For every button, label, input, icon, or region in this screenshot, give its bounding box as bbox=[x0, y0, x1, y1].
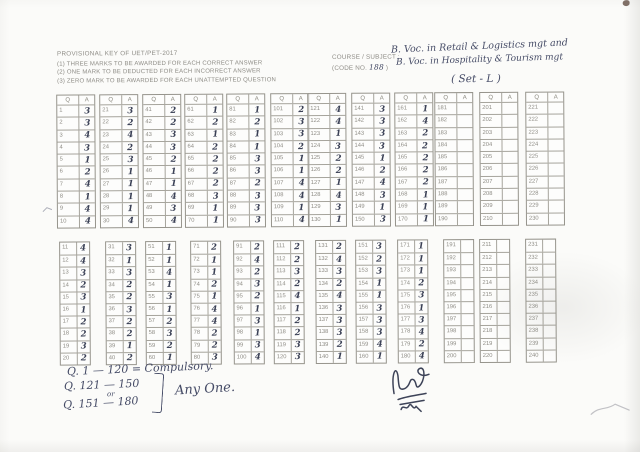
question-number: 187 bbox=[436, 177, 458, 188]
question-number: 176 bbox=[398, 302, 415, 313]
answer-cell: 2 bbox=[250, 178, 265, 189]
column-header-q: Q bbox=[143, 95, 165, 104]
answer-cell: 4 bbox=[80, 216, 95, 227]
question-number: 109 bbox=[272, 203, 294, 214]
question-number: 129 bbox=[309, 202, 331, 213]
question-number: 175 bbox=[398, 290, 415, 301]
answer-row: 217 bbox=[481, 313, 510, 325]
answer-row: 1271 bbox=[309, 177, 346, 190]
answer-row: 197 bbox=[445, 313, 474, 325]
question-number: 194 bbox=[444, 278, 461, 289]
question-number: 116 bbox=[274, 303, 291, 314]
question-number: 182 bbox=[435, 115, 457, 126]
question-number: 127 bbox=[309, 178, 331, 189]
answer-cell bbox=[462, 314, 474, 325]
answer-table-161-170: QA16111624163216421652166216721681169117… bbox=[394, 92, 434, 226]
handwritten-answer: 3 bbox=[127, 155, 133, 165]
answer-cell: 1 bbox=[249, 104, 264, 115]
handwritten-answer: 3 bbox=[80, 293, 86, 303]
code-suffix: ) bbox=[384, 65, 388, 72]
course-subject-label: COURSE / SUBJECT : bbox=[332, 54, 400, 61]
answer-row: 233 bbox=[526, 264, 555, 276]
answer-cell bbox=[503, 164, 518, 175]
question-number: 139 bbox=[317, 339, 334, 350]
question-number: 119 bbox=[275, 340, 292, 351]
answer-cell bbox=[457, 103, 472, 114]
question-number: 104 bbox=[271, 141, 293, 152]
answer-cell: 3 bbox=[374, 104, 389, 115]
answer-row: 642 bbox=[185, 140, 222, 153]
answer-cell bbox=[503, 177, 518, 188]
answer-cell: 2 bbox=[331, 165, 346, 176]
answer-cell bbox=[503, 189, 518, 200]
question-number: 113 bbox=[274, 267, 291, 278]
answer-row: 1104 bbox=[272, 214, 309, 227]
answer-row: 1784 bbox=[399, 326, 428, 338]
answer-cell bbox=[461, 302, 473, 313]
answer-cell bbox=[549, 201, 564, 212]
answer-row: 1731 bbox=[398, 265, 427, 277]
handwritten-answer: 3 bbox=[298, 129, 304, 139]
question-number: 47 bbox=[144, 179, 166, 190]
handwritten-answer: 1 bbox=[294, 304, 300, 314]
answer-cell: 1 bbox=[294, 166, 309, 177]
handwritten-answer: 1 bbox=[127, 167, 133, 177]
answer-row: 1383 bbox=[317, 326, 346, 338]
handwritten-answer: 4 bbox=[294, 291, 300, 301]
handwritten-answer: 4 bbox=[84, 217, 90, 227]
answer-row: 1611 bbox=[395, 102, 432, 115]
question-number: 238 bbox=[527, 326, 544, 337]
answer-row: 1672 bbox=[396, 176, 433, 189]
answer-cell bbox=[461, 278, 473, 289]
answer-cell: 1 bbox=[208, 267, 220, 278]
answer-cell: 2 bbox=[292, 315, 304, 326]
answer-cell bbox=[458, 189, 473, 200]
answer-row: 1042 bbox=[271, 140, 308, 153]
question-number: 217 bbox=[481, 314, 498, 325]
answer-row: 701 bbox=[186, 214, 223, 227]
answer-row: 199 bbox=[445, 338, 474, 350]
handwritten-answer: 1 bbox=[166, 243, 172, 253]
answer-cell: 2 bbox=[293, 104, 308, 115]
handwritten-answer: 3 bbox=[379, 104, 385, 114]
handwritten-answer: 3 bbox=[379, 129, 385, 139]
question-number: 10 bbox=[58, 216, 80, 227]
answer-cell: 3 bbox=[250, 215, 265, 226]
handwritten-answer: 2 bbox=[294, 328, 300, 338]
question-number: 172 bbox=[398, 254, 415, 265]
question-number: 92 bbox=[234, 255, 251, 266]
answer-row: 1681 bbox=[396, 188, 433, 201]
answer-row: 1573 bbox=[357, 314, 386, 326]
answer-cell: 1 bbox=[375, 153, 390, 164]
answer-cell: 2 bbox=[418, 177, 433, 188]
question-number: 152 bbox=[356, 254, 373, 265]
answer-row: 232 bbox=[526, 252, 555, 264]
answer-cell: 3 bbox=[293, 129, 308, 140]
column-header-q: Q bbox=[308, 94, 330, 103]
answer-cell: 2 bbox=[207, 141, 222, 152]
question-number: 124 bbox=[308, 141, 330, 152]
answer-cell bbox=[498, 314, 510, 325]
answer-cell: 2 bbox=[417, 128, 432, 139]
question-number: 120 bbox=[275, 352, 292, 363]
answer-cell: 4 bbox=[331, 190, 346, 201]
answer-cell: 3 bbox=[292, 340, 304, 351]
handwritten-answer: 3 bbox=[166, 329, 172, 339]
answer-cell: 4 bbox=[330, 104, 345, 115]
answer-cell: 2 bbox=[417, 140, 432, 151]
answer-cell: 1 bbox=[166, 166, 181, 177]
answer-row: 1533 bbox=[356, 265, 385, 277]
answer-cell: 3 bbox=[79, 105, 94, 116]
answer-cell: 3 bbox=[416, 314, 428, 325]
handwritten-answer: 2 bbox=[127, 143, 133, 153]
answer-row: 186 bbox=[436, 164, 473, 177]
answer-cell: 4 bbox=[417, 116, 432, 127]
handwritten-answer: 2 bbox=[81, 354, 87, 364]
answer-cell: 2 bbox=[209, 340, 221, 351]
question-number: 8 bbox=[58, 192, 80, 203]
handwritten-answer: 3 bbox=[379, 141, 385, 151]
answer-cell: 4 bbox=[251, 255, 263, 266]
answer-table-121-130: QA12141224123112431252126212711284129313… bbox=[307, 93, 347, 227]
handwritten-answer: 2 bbox=[335, 166, 341, 176]
handwritten-answer: 1 bbox=[212, 130, 218, 140]
answer-cell: 4 bbox=[375, 177, 390, 188]
handwritten-answer: 2 bbox=[418, 279, 424, 289]
answer-cell: 1 bbox=[331, 215, 346, 226]
question-number: 212 bbox=[480, 253, 497, 264]
answer-cell bbox=[497, 253, 509, 264]
question-number: 181 bbox=[435, 103, 457, 114]
answer-cell: 1 bbox=[415, 240, 427, 252]
answer-row: 114 bbox=[60, 242, 89, 254]
handwritten-answer: 4 bbox=[254, 255, 260, 265]
column-header-a: A bbox=[207, 95, 222, 104]
answer-row: 201 bbox=[480, 102, 517, 115]
question-number: 34 bbox=[106, 280, 123, 291]
answer-cell: 1 bbox=[208, 255, 220, 266]
handwritten-answer: 1 bbox=[335, 129, 341, 139]
answer-row: 215 bbox=[480, 289, 509, 301]
answer-cell bbox=[497, 240, 509, 252]
answer-cell: 1 bbox=[163, 242, 175, 254]
answer-cell: 1 bbox=[208, 215, 223, 226]
answer-cell bbox=[462, 351, 474, 362]
answer-row: 200 bbox=[445, 350, 474, 362]
answer-cell: 3 bbox=[208, 191, 223, 202]
answer-cell bbox=[462, 326, 474, 337]
answer-row: 372 bbox=[107, 315, 136, 327]
question-number: 43 bbox=[143, 130, 165, 141]
answer-row: 124 bbox=[60, 255, 89, 267]
handwritten-answer: 3 bbox=[418, 291, 424, 301]
question-number: 135 bbox=[316, 291, 333, 302]
handwritten-answer: 2 bbox=[126, 280, 132, 290]
note-q-prefix: Q. bbox=[67, 365, 79, 378]
question-number: 186 bbox=[436, 165, 458, 176]
answer-cell: 1 bbox=[251, 303, 263, 314]
question-number: 21 bbox=[100, 105, 122, 116]
handwritten-answer: 2 bbox=[211, 328, 217, 338]
answer-row: 1642 bbox=[395, 139, 432, 152]
answer-row: 893 bbox=[228, 202, 265, 215]
handwritten-answer: 2 bbox=[422, 141, 428, 151]
answer-row: 182 bbox=[435, 114, 472, 127]
column-header-a: A bbox=[502, 93, 517, 102]
set-label: ( Set - L ) bbox=[451, 73, 501, 85]
answer-cell bbox=[461, 290, 473, 301]
answer-row: 1742 bbox=[398, 277, 427, 289]
question-number: 128 bbox=[309, 190, 331, 201]
handwritten-answer: 3 bbox=[126, 305, 132, 315]
answer-cell: 2 bbox=[80, 167, 95, 178]
answer-row: 221 bbox=[526, 102, 563, 115]
answer-cell: 2 bbox=[78, 317, 90, 328]
handwritten-answer: 1 bbox=[376, 291, 382, 301]
answer-row: 1172 bbox=[275, 314, 304, 326]
answer-row: 1342 bbox=[316, 277, 345, 289]
question-number: 12 bbox=[60, 256, 77, 267]
answer-cell: 2 bbox=[375, 165, 390, 176]
question-number: 108 bbox=[272, 190, 294, 201]
answer-row: 185 bbox=[436, 151, 473, 164]
answer-row: 213 bbox=[480, 264, 509, 276]
answer-row: 883 bbox=[228, 189, 265, 202]
question-number: 144 bbox=[352, 141, 374, 152]
question-number: 122 bbox=[308, 116, 330, 127]
answer-cell: 3 bbox=[250, 166, 265, 177]
handwritten-answer: 3 bbox=[379, 190, 385, 200]
question-number: 57 bbox=[147, 316, 164, 327]
answer-cell: 2 bbox=[165, 105, 180, 116]
answer-cell bbox=[457, 128, 472, 139]
answer-cell: 2 bbox=[164, 340, 176, 351]
answer-row: 1483 bbox=[353, 189, 390, 202]
question-number: 160 bbox=[357, 351, 374, 362]
scan-content: PROVISIONAL KEY OF UET/PET-2017 (1) THRE… bbox=[0, 0, 640, 452]
answer-cell: 4 bbox=[294, 178, 309, 189]
answer-cell: 1 bbox=[163, 279, 175, 290]
answer-table-191-200: 191192193194195196197198199200 bbox=[443, 239, 475, 363]
handwritten-answer: 2 bbox=[212, 118, 218, 128]
answer-row: 231 bbox=[526, 240, 555, 252]
handwritten-answer: 4 bbox=[255, 353, 261, 363]
answer-row: 484 bbox=[144, 190, 181, 203]
handwritten-answer: 2 bbox=[81, 317, 87, 327]
answer-cell: 1 bbox=[80, 155, 95, 166]
answer-cell: 3 bbox=[78, 341, 90, 352]
table-header-row: QA bbox=[526, 93, 563, 102]
question-number: 31 bbox=[106, 242, 123, 254]
answer-row: 721 bbox=[191, 254, 220, 266]
answer-table-181-190: QA181182183184185186187188189190 bbox=[434, 92, 474, 226]
question-number: 23 bbox=[100, 130, 122, 141]
answer-row: 592 bbox=[147, 339, 176, 351]
code-prefix: (CODE NO. bbox=[332, 65, 369, 72]
answer-cell: 3 bbox=[163, 292, 175, 303]
handwritten-answer: 1 bbox=[166, 280, 172, 290]
answer-cell: 4 bbox=[291, 291, 303, 302]
answer-row: 352 bbox=[106, 291, 135, 303]
answer-cell bbox=[497, 277, 509, 288]
note-range-151-180: Q. 151 — 180 bbox=[63, 394, 139, 411]
handwritten-answer: 4 bbox=[335, 190, 341, 200]
answer-row: 237 bbox=[527, 313, 556, 325]
handwritten-answer: 2 bbox=[212, 341, 218, 351]
question-number: 236 bbox=[526, 302, 543, 313]
question-number: 42 bbox=[143, 117, 165, 128]
question-number: 134 bbox=[316, 278, 333, 289]
handwritten-answer: 4 bbox=[298, 178, 304, 188]
question-number: 100 bbox=[235, 352, 252, 363]
answer-table-1-10: QA132334435162748194104 bbox=[56, 94, 96, 228]
answer-row: 672 bbox=[186, 177, 223, 190]
question-number: 158 bbox=[357, 327, 374, 338]
answer-cell: 3 bbox=[373, 303, 385, 314]
question-number: 161 bbox=[395, 103, 417, 114]
column-header-a: A bbox=[548, 93, 563, 102]
handwritten-answer: 1 bbox=[254, 129, 260, 139]
answer-row: 1652 bbox=[396, 151, 433, 164]
answer-row: 43 bbox=[57, 141, 94, 154]
answer-table-231-240: 231232233234235236237238239240 bbox=[525, 239, 557, 363]
handwritten-answer: 1 bbox=[379, 153, 385, 163]
question-number: 179 bbox=[399, 339, 416, 350]
answer-cell: 1 bbox=[415, 302, 427, 313]
question-number: 25 bbox=[101, 154, 123, 165]
answer-row: 751 bbox=[191, 290, 220, 302]
answer-row: 382 bbox=[107, 327, 136, 339]
answer-row: 210 bbox=[481, 212, 518, 225]
answer-cell bbox=[498, 326, 510, 337]
answer-row: 504 bbox=[144, 215, 181, 228]
question-number: 203 bbox=[480, 127, 502, 138]
column-header-a: A bbox=[457, 93, 472, 102]
question-number: 55 bbox=[146, 292, 163, 303]
answer-cell: 2 bbox=[123, 280, 135, 291]
question-number: 67 bbox=[186, 178, 208, 189]
column-header-q: Q bbox=[435, 93, 457, 102]
code-number-label: (CODE NO. 188 ) bbox=[332, 63, 388, 72]
answer-cell: 4 bbox=[77, 242, 89, 254]
question-number: 1 bbox=[57, 105, 79, 116]
question-number: 75 bbox=[191, 291, 208, 302]
question-number: 131 bbox=[316, 241, 333, 253]
question-number: 190 bbox=[436, 214, 458, 225]
handwritten-answer: 3 bbox=[170, 142, 176, 152]
handwritten-answer: 3 bbox=[335, 141, 341, 151]
answer-row: 1491 bbox=[353, 201, 390, 214]
handwritten-answer: 4 bbox=[298, 215, 304, 225]
answer-row: 1503 bbox=[353, 213, 390, 226]
column-header-q: Q bbox=[100, 95, 122, 104]
question-number: 147 bbox=[353, 177, 375, 188]
table-header-row: QA bbox=[143, 95, 180, 104]
answer-row: 792 bbox=[192, 339, 221, 351]
handwritten-answer: 3 bbox=[336, 267, 342, 277]
question-number: 132 bbox=[316, 254, 333, 265]
answer-row: 652 bbox=[186, 153, 223, 166]
answer-table-111-120: 1112112211331142115411611172118211931203 bbox=[273, 240, 305, 364]
answer-cell: 3 bbox=[165, 142, 180, 153]
handwritten-answer: 3 bbox=[376, 266, 382, 276]
answer-cell: 2 bbox=[164, 316, 176, 327]
answer-cell: 2 bbox=[208, 166, 223, 177]
answer-table-201-210: QA201202203204205206207208209210 bbox=[479, 92, 519, 226]
handwritten-answer: 3 bbox=[376, 327, 382, 337]
column-header-a: A bbox=[330, 94, 345, 103]
answer-row: 631 bbox=[185, 128, 222, 141]
answer-row: 782 bbox=[192, 327, 221, 339]
question-number: 215 bbox=[480, 290, 497, 301]
handwritten-answer: 2 bbox=[254, 267, 260, 277]
answer-cell: 2 bbox=[123, 292, 135, 303]
question-number: 63 bbox=[185, 129, 207, 140]
answer-cell: 3 bbox=[251, 279, 263, 290]
handwritten-answer: 3 bbox=[126, 243, 132, 253]
answer-cell: 2 bbox=[124, 328, 136, 339]
answer-row: 1133 bbox=[274, 265, 303, 277]
answer-row: 1433 bbox=[352, 127, 389, 140]
answer-row: 1023 bbox=[271, 115, 308, 128]
answer-row: 764 bbox=[191, 303, 220, 315]
column-header-a: A bbox=[122, 95, 137, 104]
answer-table-221-230: QA221222223224225226227228229230 bbox=[525, 92, 565, 226]
handwritten-answer: 1 bbox=[335, 215, 341, 225]
answer-cell: 3 bbox=[330, 141, 345, 152]
answer-row: 1084 bbox=[272, 189, 309, 202]
answer-cell: 4 bbox=[333, 254, 345, 265]
handwritten-answer: 2 bbox=[254, 242, 260, 252]
answer-cell: 1 bbox=[80, 191, 95, 202]
handwritten-answer: 2 bbox=[212, 154, 218, 164]
answer-row: 104 bbox=[58, 215, 95, 228]
question-number: 19 bbox=[61, 341, 78, 352]
answer-table-81-90: QA811822831841853863872883893903 bbox=[226, 93, 266, 227]
question-number: 196 bbox=[444, 302, 461, 313]
question-number: 44 bbox=[143, 142, 165, 153]
column-header-q: Q bbox=[480, 93, 502, 102]
answer-cell: 3 bbox=[373, 241, 385, 253]
column-header-q: Q bbox=[395, 93, 417, 102]
answer-cell: 2 bbox=[292, 327, 304, 338]
answer-cell: 3 bbox=[77, 292, 89, 303]
answer-cell: 2 bbox=[418, 152, 433, 163]
answer-cell: 4 bbox=[123, 216, 138, 227]
answer-row: 1354 bbox=[316, 290, 345, 302]
handwritten-answer: 3 bbox=[295, 340, 301, 350]
handwritten-answer: 4 bbox=[377, 340, 383, 350]
answer-cell: 3 bbox=[166, 203, 181, 214]
handwritten-answer: 3 bbox=[336, 328, 342, 338]
question-number: 210 bbox=[481, 214, 503, 225]
question-number: 228 bbox=[527, 189, 549, 200]
answer-row: 993 bbox=[235, 339, 264, 351]
handwritten-answer: 1 bbox=[211, 267, 217, 277]
question-number: 93 bbox=[234, 267, 251, 278]
answer-cell: 2 bbox=[209, 328, 221, 339]
table-header-row: QA bbox=[352, 94, 389, 103]
answer-row: 23 bbox=[57, 117, 94, 130]
question-number: 211 bbox=[480, 240, 497, 252]
answer-cell: 3 bbox=[374, 327, 386, 338]
question-number: 145 bbox=[353, 153, 375, 164]
answer-row: 1701 bbox=[396, 213, 433, 226]
answer-cell: 2 bbox=[251, 267, 263, 278]
